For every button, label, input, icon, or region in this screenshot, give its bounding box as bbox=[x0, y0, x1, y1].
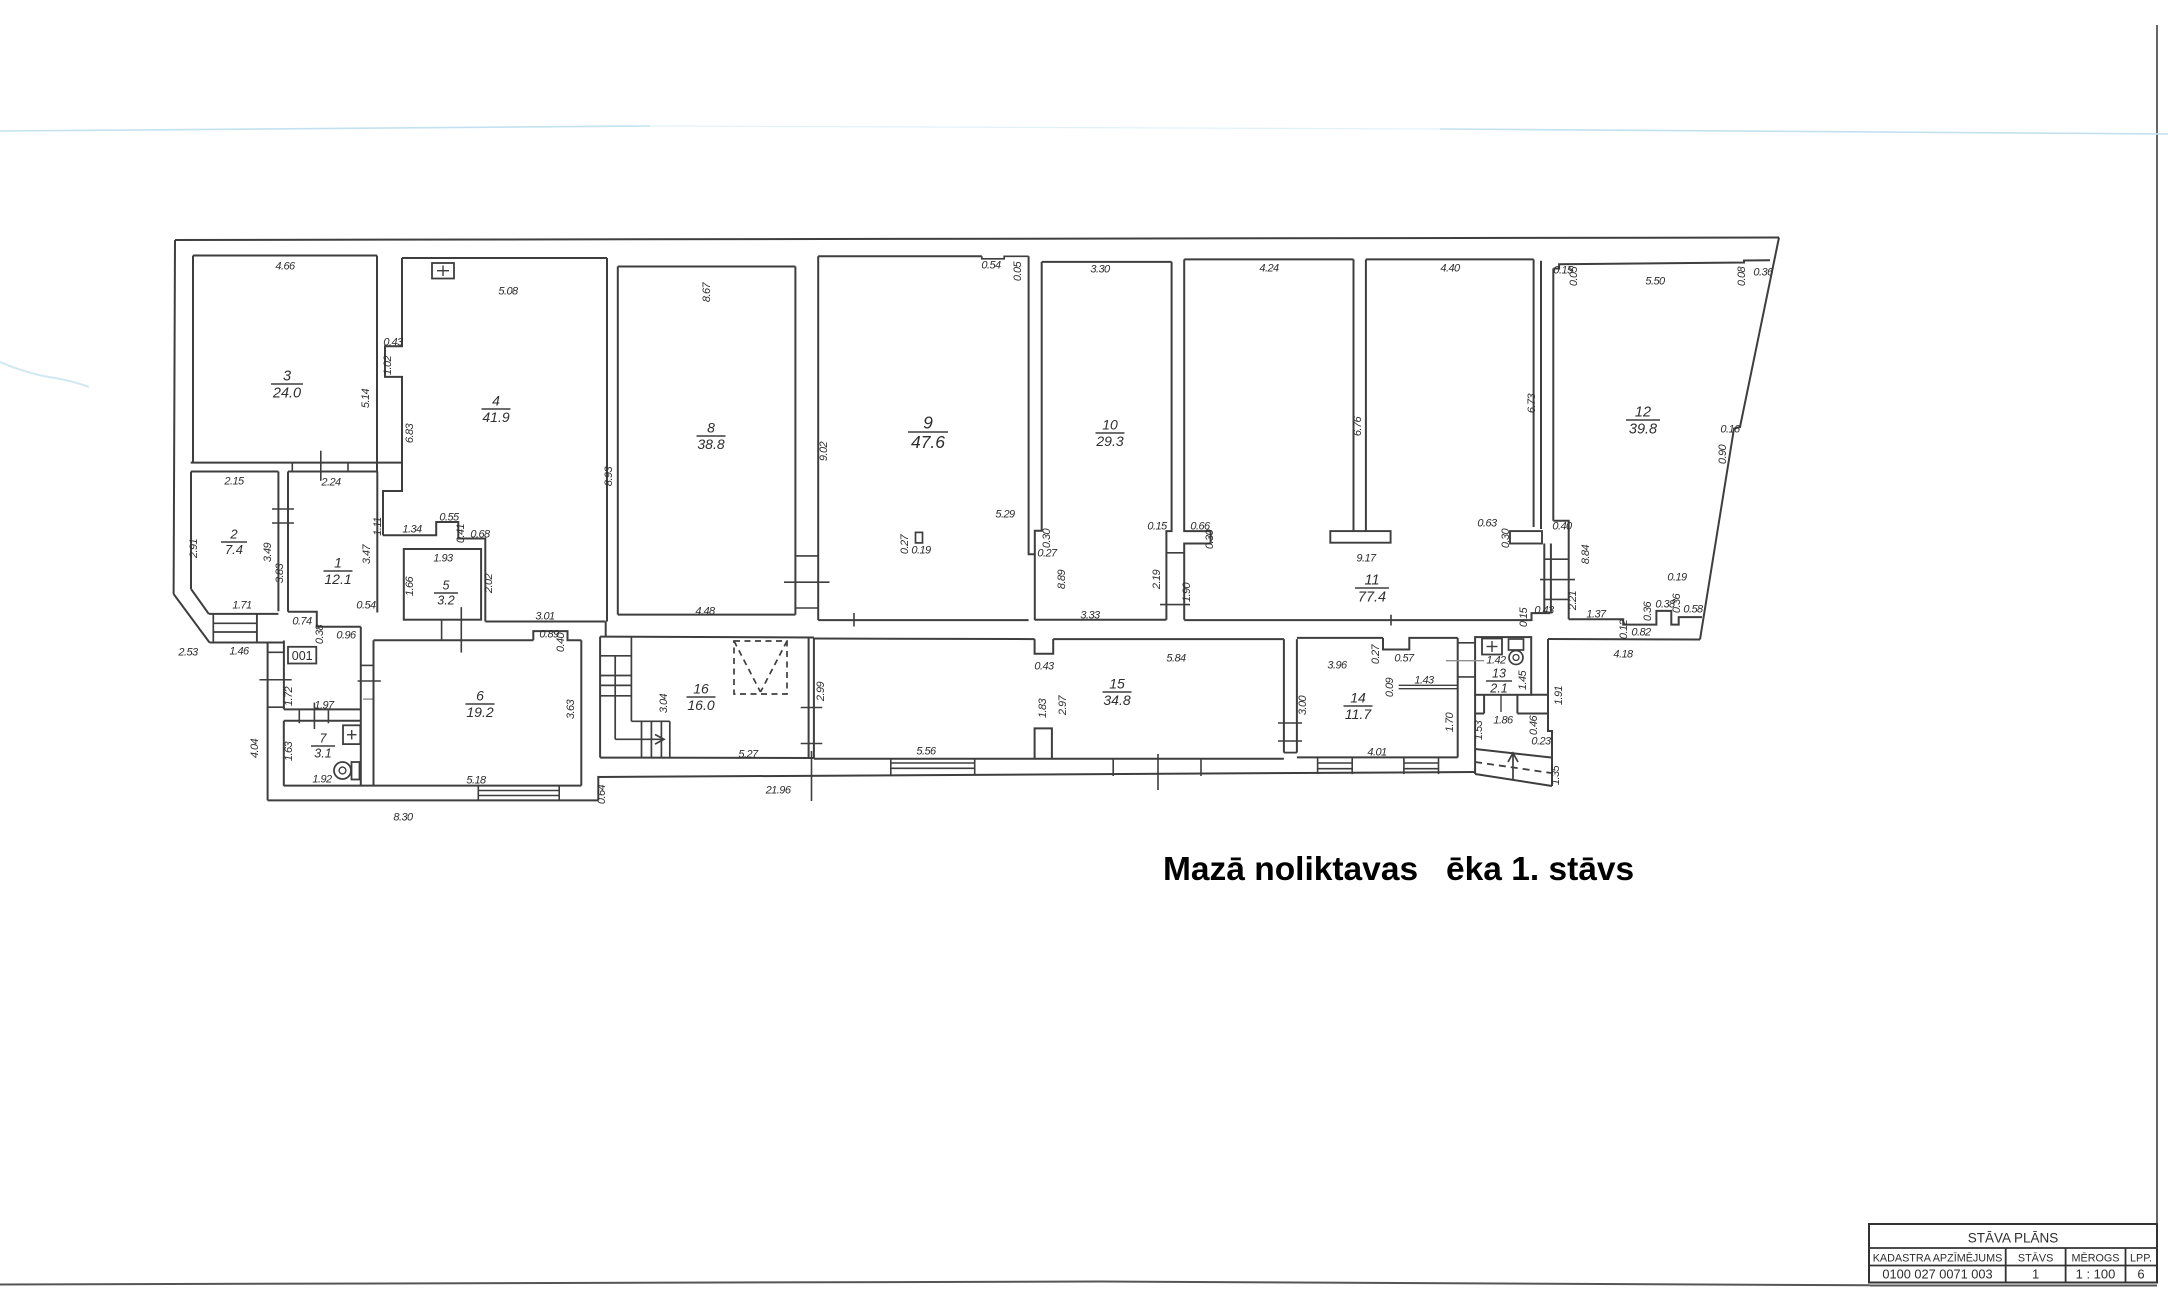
svg-text:0.27: 0.27 bbox=[1370, 643, 1382, 664]
svg-text:0.40: 0.40 bbox=[555, 631, 567, 652]
svg-text:0.30: 0.30 bbox=[1500, 527, 1512, 548]
svg-text:2.02: 2.02 bbox=[483, 573, 495, 594]
svg-text:6: 6 bbox=[2137, 1267, 2144, 1282]
svg-text:3.83: 3.83 bbox=[274, 562, 286, 583]
svg-text:1.35: 1.35 bbox=[1550, 764, 1562, 785]
svg-text:STĀVS: STĀVS bbox=[2018, 1253, 2053, 1265]
svg-text:5.08: 5.08 bbox=[498, 286, 519, 298]
svg-text:0.38: 0.38 bbox=[314, 623, 326, 644]
svg-text:0.15: 0.15 bbox=[1147, 521, 1168, 533]
svg-text:4.24: 4.24 bbox=[1259, 263, 1279, 275]
svg-text:7.4: 7.4 bbox=[225, 542, 243, 557]
svg-text:0.36: 0.36 bbox=[1753, 267, 1774, 279]
svg-text:39.8: 39.8 bbox=[1629, 421, 1657, 437]
svg-text:STĀVA PLĀNS: STĀVA PLĀNS bbox=[1968, 1231, 2059, 1246]
svg-text:2.24: 2.24 bbox=[320, 477, 341, 489]
svg-text:14: 14 bbox=[1350, 690, 1366, 706]
svg-text:8: 8 bbox=[707, 420, 715, 436]
svg-text:3.96: 3.96 bbox=[1327, 660, 1348, 672]
svg-text:4.66: 4.66 bbox=[275, 261, 296, 273]
svg-text:1.46: 1.46 bbox=[229, 646, 250, 658]
svg-text:12.1: 12.1 bbox=[324, 571, 351, 587]
svg-text:3.04: 3.04 bbox=[658, 693, 670, 713]
svg-text:1.11: 1.11 bbox=[372, 517, 384, 536]
svg-text:1.02: 1.02 bbox=[382, 355, 394, 375]
svg-text:4: 4 bbox=[492, 393, 500, 409]
svg-text:41.9: 41.9 bbox=[482, 409, 509, 425]
svg-text:1: 1 bbox=[334, 555, 342, 571]
svg-text:21.96: 21.96 bbox=[765, 785, 792, 797]
svg-text:16.0: 16.0 bbox=[687, 697, 714, 713]
svg-text:0.54: 0.54 bbox=[981, 260, 1001, 272]
svg-text:0.16: 0.16 bbox=[1720, 424, 1741, 436]
svg-text:1.34: 1.34 bbox=[402, 524, 422, 536]
svg-text:13: 13 bbox=[1492, 667, 1506, 681]
svg-text:9: 9 bbox=[923, 413, 933, 433]
svg-text:4.40: 4.40 bbox=[1440, 263, 1461, 275]
svg-text:4.04: 4.04 bbox=[249, 738, 261, 758]
svg-text:0100 027 0071 003: 0100 027 0071 003 bbox=[1882, 1267, 1992, 1282]
svg-text:1.92: 1.92 bbox=[312, 774, 332, 786]
svg-text:0.15: 0.15 bbox=[1518, 606, 1530, 627]
svg-text:10: 10 bbox=[1102, 417, 1118, 433]
svg-text:0.05: 0.05 bbox=[1568, 265, 1580, 286]
svg-text:MĒROGS: MĒROGS bbox=[2072, 1253, 2120, 1265]
svg-text:2.15: 2.15 bbox=[223, 476, 245, 488]
svg-text:0.19: 0.19 bbox=[1667, 572, 1687, 584]
svg-text:8.67: 8.67 bbox=[701, 281, 713, 302]
svg-text:5.18: 5.18 bbox=[466, 775, 487, 787]
svg-text:6.83: 6.83 bbox=[404, 422, 416, 443]
svg-text:5.50: 5.50 bbox=[1645, 276, 1666, 288]
svg-text:77.4: 77.4 bbox=[1358, 589, 1386, 605]
svg-text:0.27: 0.27 bbox=[1037, 548, 1058, 560]
svg-text:Mazā noliktavas: Mazā noliktavas bbox=[1163, 851, 1418, 888]
svg-text:9.17: 9.17 bbox=[1356, 553, 1377, 565]
svg-text:1.90: 1.90 bbox=[1181, 581, 1193, 602]
svg-text:8.84: 8.84 bbox=[1580, 544, 1592, 564]
svg-text:9.02: 9.02 bbox=[818, 441, 830, 461]
svg-text:0.36: 0.36 bbox=[1642, 600, 1654, 621]
svg-text:1.91: 1.91 bbox=[1553, 685, 1565, 705]
svg-text:47.6: 47.6 bbox=[911, 432, 945, 452]
svg-text:1.71: 1.71 bbox=[232, 600, 252, 612]
svg-text:12: 12 bbox=[1635, 405, 1651, 421]
svg-text:3.30: 3.30 bbox=[1090, 264, 1111, 276]
svg-text:0.05: 0.05 bbox=[1012, 260, 1024, 281]
svg-text:1.42: 1.42 bbox=[1486, 655, 1506, 667]
svg-text:0.64: 0.64 bbox=[596, 784, 608, 804]
svg-text:2.1: 2.1 bbox=[1489, 682, 1507, 696]
svg-text:6.76: 6.76 bbox=[1352, 415, 1364, 436]
svg-text:0.74: 0.74 bbox=[292, 616, 312, 628]
svg-text:34.8: 34.8 bbox=[1103, 692, 1130, 708]
svg-text:0.30: 0.30 bbox=[1041, 527, 1053, 548]
svg-text:1.72: 1.72 bbox=[283, 686, 295, 706]
svg-text:8.30: 8.30 bbox=[393, 812, 414, 824]
svg-text:3.49: 3.49 bbox=[262, 542, 274, 562]
svg-text:6.73: 6.73 bbox=[1526, 392, 1538, 413]
svg-text:1.66: 1.66 bbox=[404, 575, 416, 596]
svg-text:0.43: 0.43 bbox=[1534, 605, 1555, 617]
svg-text:0.68: 0.68 bbox=[470, 529, 491, 541]
svg-text:001: 001 bbox=[292, 649, 313, 663]
svg-text:1.83: 1.83 bbox=[1037, 697, 1049, 718]
svg-text:2.21: 2.21 bbox=[1567, 590, 1579, 611]
svg-text:3.1: 3.1 bbox=[314, 747, 331, 761]
svg-text:16: 16 bbox=[693, 681, 709, 697]
svg-text:3.47: 3.47 bbox=[361, 543, 373, 564]
svg-text:4.01: 4.01 bbox=[1367, 747, 1387, 759]
svg-text:5.29: 5.29 bbox=[995, 509, 1015, 521]
svg-text:0.09: 0.09 bbox=[1384, 677, 1396, 697]
svg-text:0.12: 0.12 bbox=[1618, 619, 1630, 639]
svg-text:0.40: 0.40 bbox=[1552, 521, 1573, 533]
svg-text:0.30: 0.30 bbox=[1204, 528, 1216, 549]
svg-text:4.18: 4.18 bbox=[1613, 649, 1634, 661]
svg-text:7: 7 bbox=[320, 732, 328, 746]
svg-text:24.0: 24.0 bbox=[272, 385, 301, 401]
svg-text:2.53: 2.53 bbox=[177, 647, 199, 659]
svg-text:1.97: 1.97 bbox=[314, 700, 335, 712]
svg-text:1.86: 1.86 bbox=[1493, 715, 1514, 727]
svg-text:5.27: 5.27 bbox=[738, 749, 759, 761]
svg-text:1.93: 1.93 bbox=[433, 553, 454, 565]
svg-text:0.27: 0.27 bbox=[899, 533, 911, 554]
svg-text:11.7: 11.7 bbox=[1345, 706, 1372, 722]
svg-text:0.63: 0.63 bbox=[1477, 518, 1498, 530]
svg-text:0.43: 0.43 bbox=[383, 337, 404, 349]
svg-text:0.08: 0.08 bbox=[1736, 265, 1748, 286]
svg-text:8.93: 8.93 bbox=[603, 465, 615, 486]
svg-text:1.37: 1.37 bbox=[1586, 609, 1607, 621]
svg-text:0.90: 0.90 bbox=[1717, 443, 1729, 464]
svg-text:0.36: 0.36 bbox=[1671, 592, 1683, 613]
svg-text:6: 6 bbox=[476, 688, 484, 704]
svg-text:29.3: 29.3 bbox=[1095, 433, 1123, 449]
svg-text:11: 11 bbox=[1364, 573, 1379, 589]
svg-text:ēka 1. stāvs: ēka 1. stāvs bbox=[1446, 851, 1634, 888]
svg-text:3.33: 3.33 bbox=[1080, 610, 1101, 622]
svg-text:1.45: 1.45 bbox=[1517, 669, 1529, 690]
svg-text:5.56: 5.56 bbox=[916, 746, 937, 758]
svg-text:2.97: 2.97 bbox=[1057, 694, 1069, 716]
svg-text:0.96: 0.96 bbox=[336, 630, 357, 642]
svg-text:0.54: 0.54 bbox=[356, 600, 376, 612]
svg-text:3: 3 bbox=[283, 369, 291, 385]
svg-text:0.46: 0.46 bbox=[1528, 714, 1540, 735]
svg-text:5: 5 bbox=[443, 579, 450, 593]
svg-text:0.57: 0.57 bbox=[1394, 653, 1415, 665]
svg-text:38.8: 38.8 bbox=[697, 436, 724, 452]
svg-text:LPP.: LPP. bbox=[2130, 1253, 2152, 1265]
svg-text:3.63: 3.63 bbox=[565, 698, 577, 719]
svg-text:KADASTRA APZĪMĒJUMS: KADASTRA APZĪMĒJUMS bbox=[1873, 1253, 2003, 1265]
svg-text:2.99: 2.99 bbox=[815, 681, 827, 702]
svg-text:0.43: 0.43 bbox=[1034, 661, 1055, 673]
svg-text:2.91: 2.91 bbox=[188, 538, 200, 559]
svg-text:4.48: 4.48 bbox=[695, 606, 716, 618]
svg-text:1.43: 1.43 bbox=[1414, 675, 1435, 687]
svg-text:5.14: 5.14 bbox=[360, 388, 372, 408]
svg-text:0.41: 0.41 bbox=[455, 523, 467, 543]
svg-text:1.53: 1.53 bbox=[1473, 719, 1485, 740]
svg-text:19.2: 19.2 bbox=[466, 704, 493, 720]
svg-text:1.63: 1.63 bbox=[283, 740, 295, 761]
svg-text:2.19: 2.19 bbox=[1151, 569, 1163, 590]
svg-text:0.19: 0.19 bbox=[911, 545, 931, 557]
svg-text:3.00: 3.00 bbox=[1297, 694, 1309, 715]
svg-text:0.55: 0.55 bbox=[439, 512, 460, 524]
svg-text:3.2: 3.2 bbox=[437, 594, 454, 608]
svg-text:1.70: 1.70 bbox=[1444, 711, 1456, 732]
svg-text:15: 15 bbox=[1109, 676, 1125, 692]
svg-text:0.58: 0.58 bbox=[1683, 604, 1704, 616]
svg-text:5.84: 5.84 bbox=[1166, 653, 1186, 665]
svg-text:3.01: 3.01 bbox=[535, 611, 555, 623]
svg-text:1 : 100: 1 : 100 bbox=[2076, 1267, 2116, 1282]
svg-text:1: 1 bbox=[2032, 1267, 2039, 1282]
svg-text:0.82: 0.82 bbox=[1631, 627, 1651, 639]
svg-text:8.89: 8.89 bbox=[1056, 569, 1068, 589]
svg-text:2: 2 bbox=[229, 527, 238, 542]
svg-text:0.23: 0.23 bbox=[1531, 736, 1552, 748]
